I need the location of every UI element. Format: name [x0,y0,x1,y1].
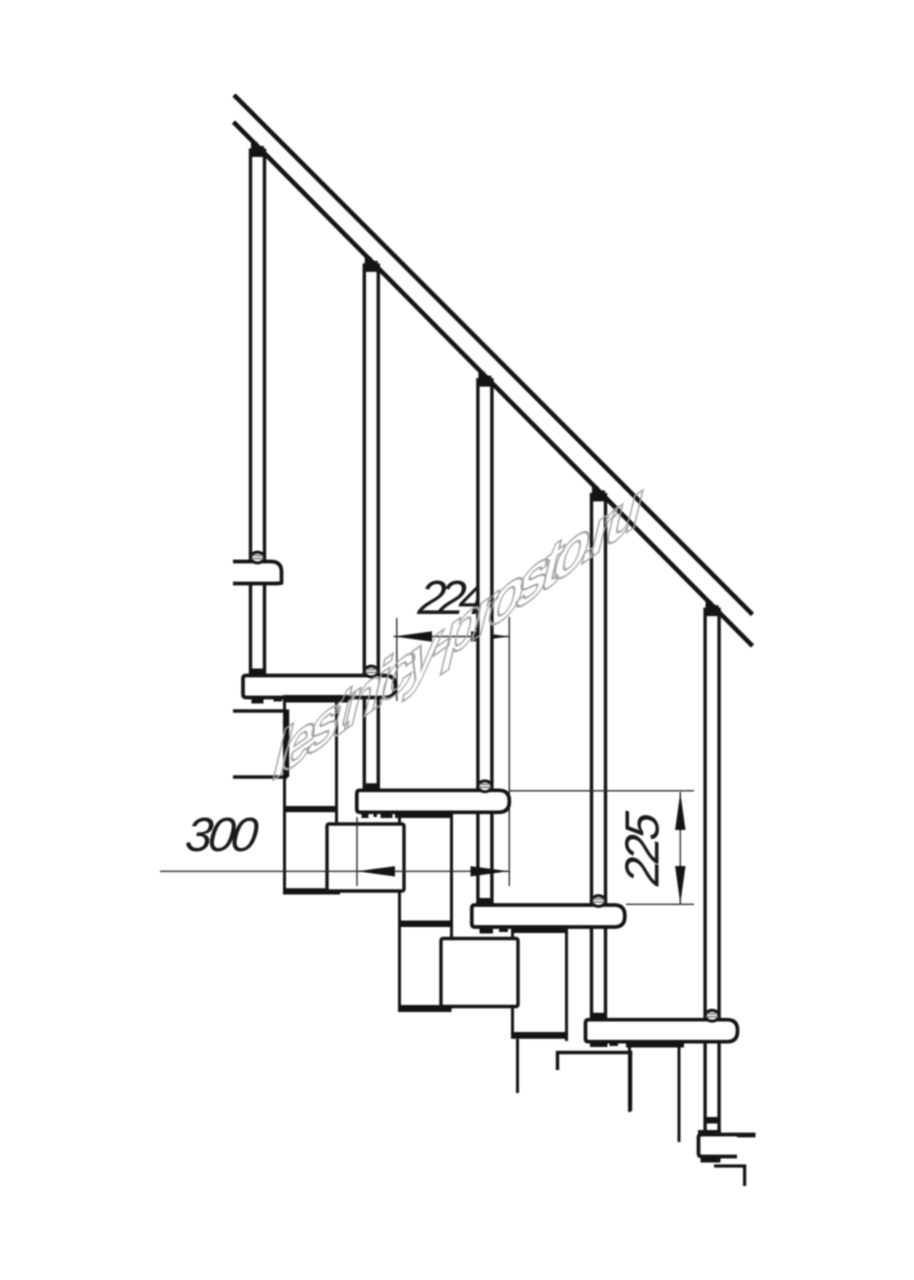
svg-text:225: 225 [616,809,670,889]
svg-text:300: 300 [183,808,262,862]
